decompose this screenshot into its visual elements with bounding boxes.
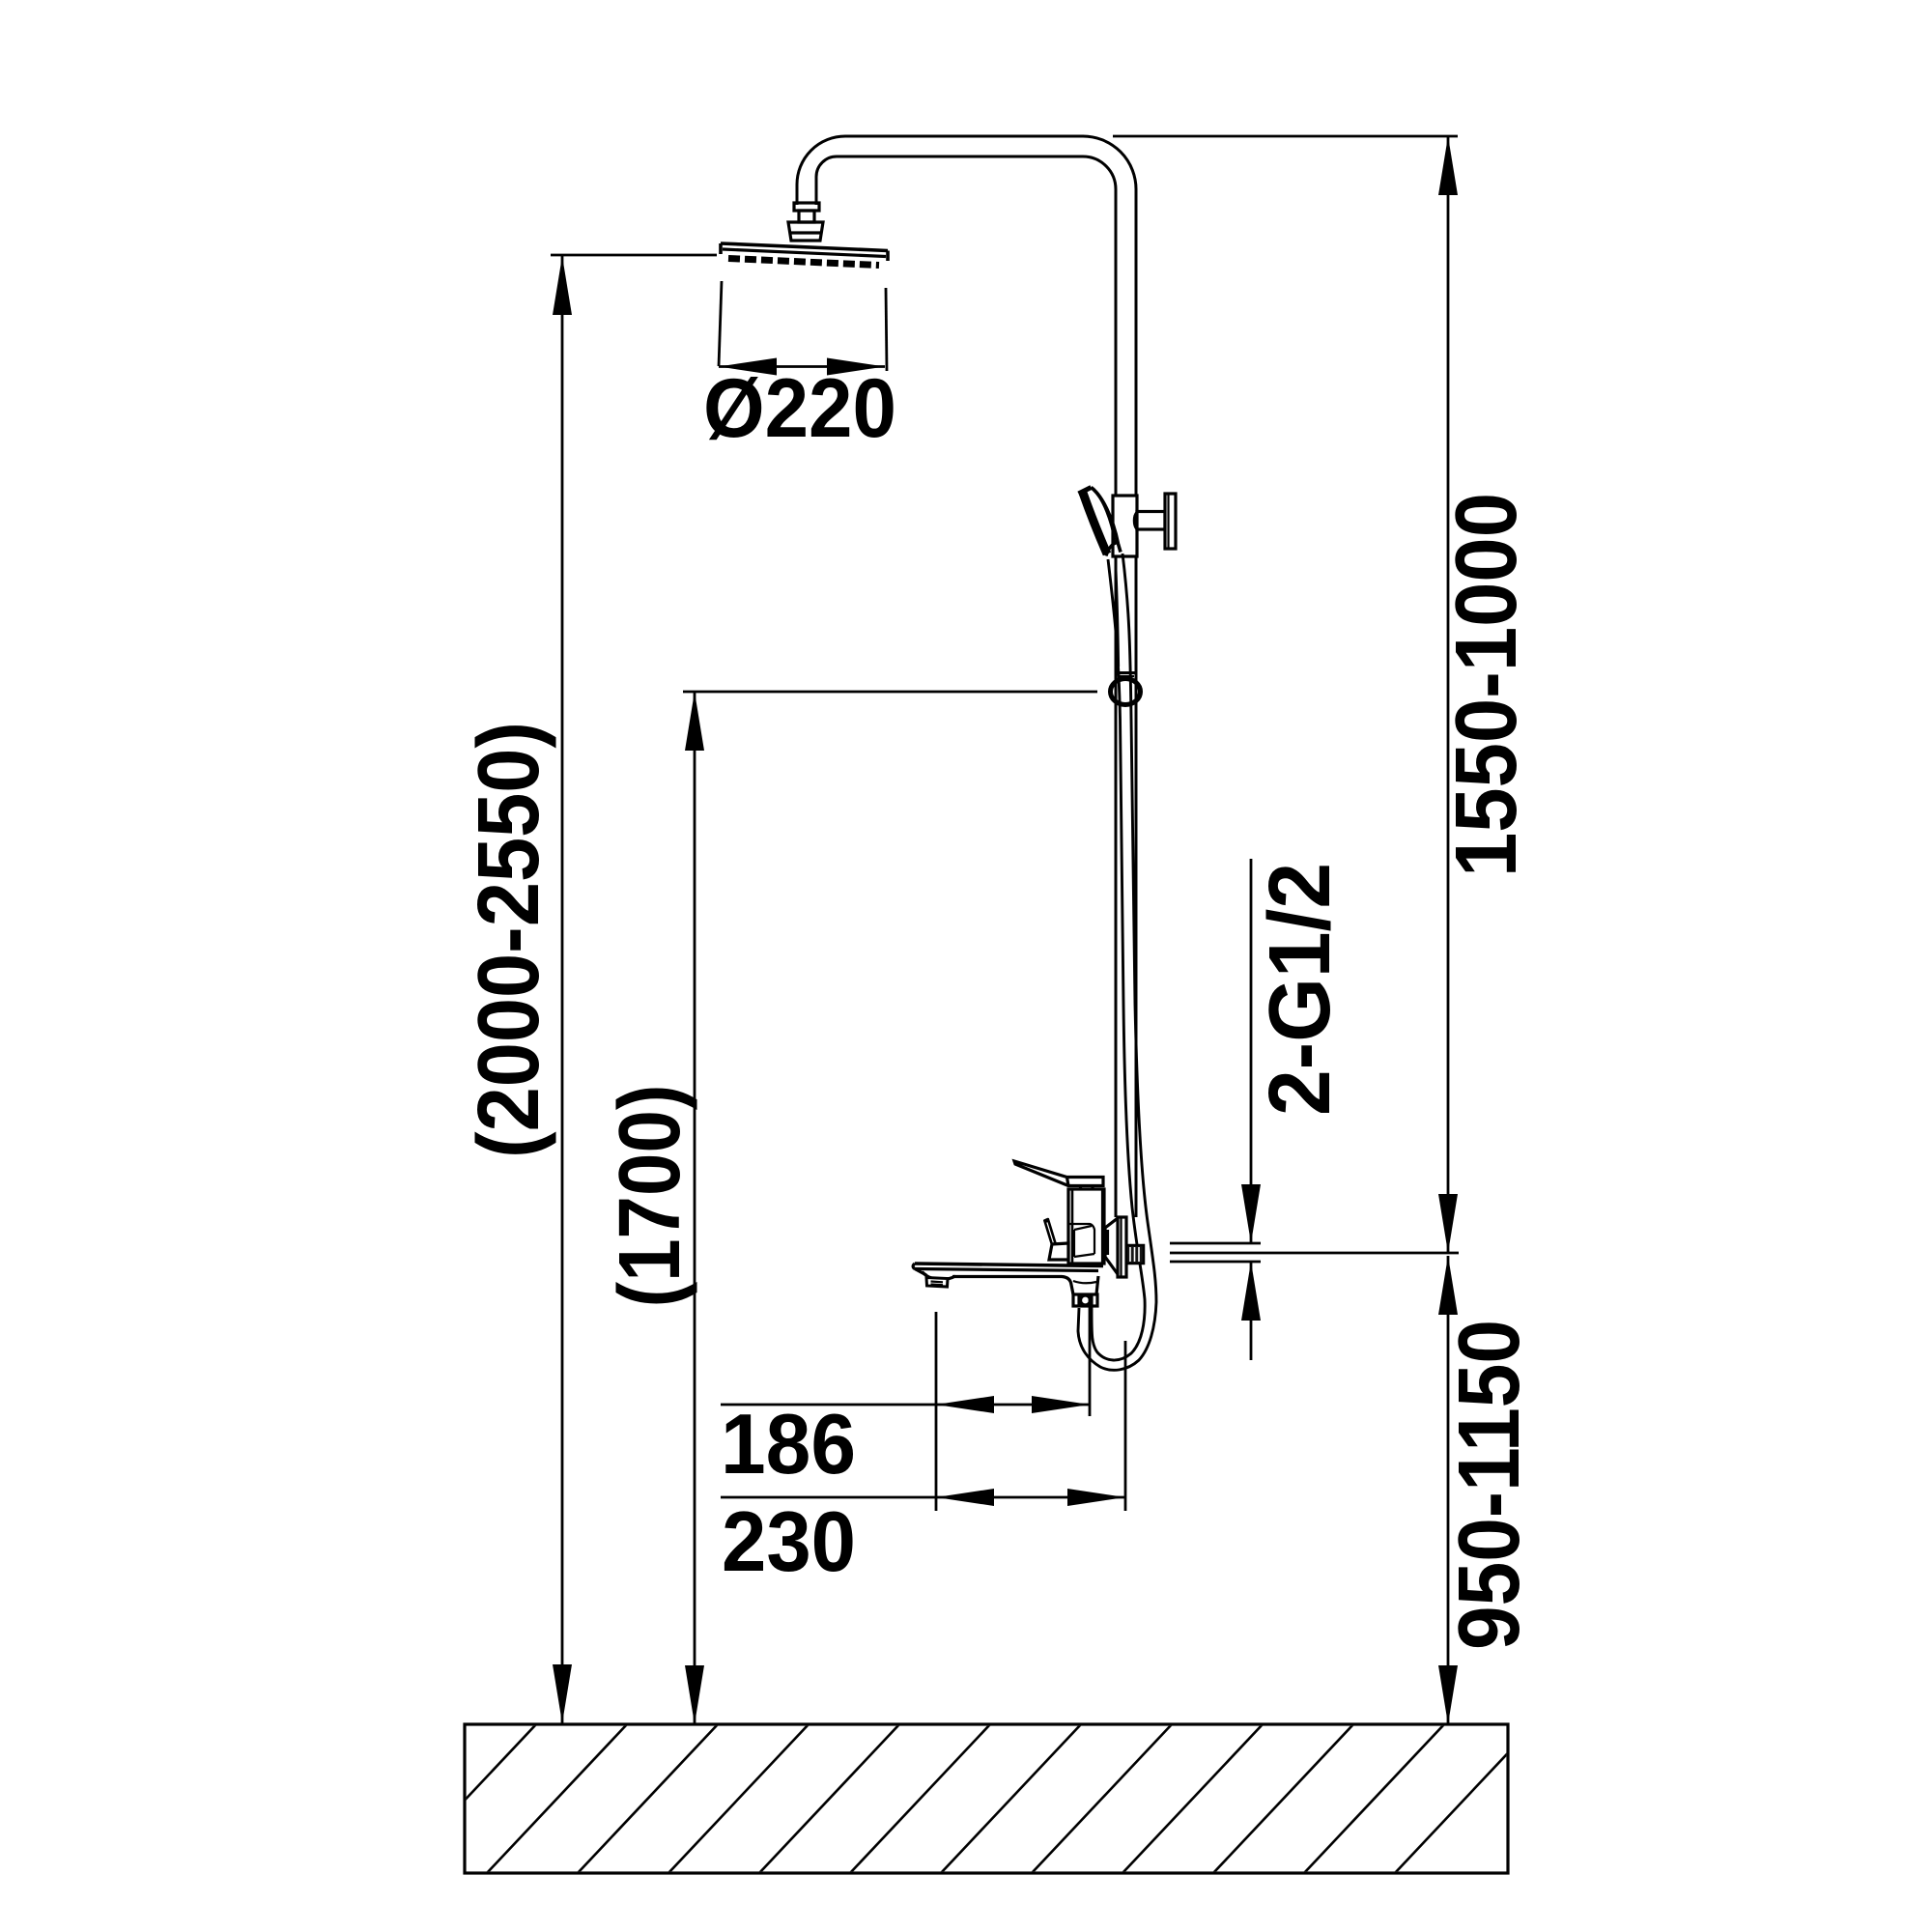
svg-text:Ø220: Ø220 <box>703 362 896 455</box>
svg-text:1550-1000: 1550-1000 <box>1438 493 1535 877</box>
svg-text:950-1150: 950-1150 <box>1441 1320 1538 1650</box>
svg-text:(1700): (1700) <box>602 1085 698 1308</box>
svg-text:230: 230 <box>722 1493 856 1589</box>
svg-text:186: 186 <box>721 1396 856 1492</box>
svg-text:2-G1/2: 2-G1/2 <box>1252 863 1349 1116</box>
svg-text:(2000-2550): (2000-2550) <box>461 722 557 1158</box>
